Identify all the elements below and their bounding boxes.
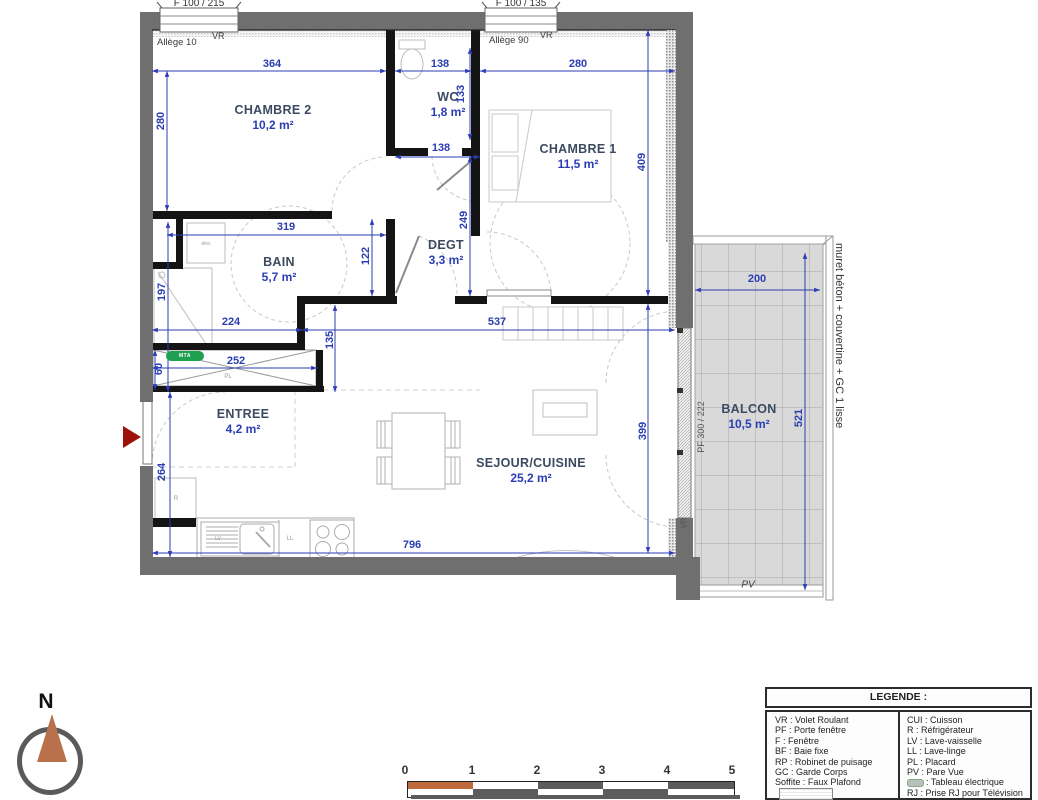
toilet-tank [399, 40, 425, 49]
dim-364: 364 [263, 58, 281, 70]
legend-body: VR : Volet Roulant PF : Porte fenêtre F … [765, 710, 1032, 800]
dim-138b: 138 [432, 142, 450, 154]
dim-133: 133 [455, 85, 467, 103]
dining-table [392, 413, 445, 489]
room-wc-area: 1,8 m² [431, 105, 466, 120]
legend-item: LV : Lave-vaisselle [907, 736, 1027, 746]
scale-tick-3: 3 [599, 763, 606, 777]
mta-badge: MTA [166, 351, 204, 361]
legend-item: BF : Baie fixe [775, 746, 897, 756]
legend-box: LEGENDE : VR : Volet Roulant PF : Porte … [765, 687, 1032, 798]
elec-label: élec [201, 241, 210, 247]
scale-tick-2: 2 [534, 763, 541, 777]
scale-tick-4: 4 [664, 763, 671, 777]
dim-409: 409 [636, 153, 648, 171]
scale-tick-0: 0 [402, 763, 409, 777]
dim-60: 60 [153, 363, 165, 375]
dim-197: 197 [156, 283, 168, 301]
dim-399: 399 [637, 422, 649, 440]
vr-label-1: VR [212, 31, 225, 41]
chambre1-door-leaf [487, 290, 551, 296]
compass-north-label: N [38, 690, 53, 714]
legend-title: LEGENDE : [765, 687, 1032, 708]
dim-280h: 280 [569, 58, 587, 70]
room-entree: ENTREE 4,2 m² [217, 407, 270, 437]
room-bain-name: BAIN [262, 255, 297, 270]
window1-label: F 100 / 215 [174, 0, 225, 9]
dim-122: 122 [360, 247, 372, 265]
allege90-label: Allège 90 [489, 35, 529, 46]
dim-200: 200 [748, 273, 766, 285]
legend-item: : Tableau électrique [907, 777, 1027, 787]
legend-item: GC : Garde Corps [775, 767, 897, 777]
room-chambre1-area: 11,5 m² [539, 157, 616, 172]
dim-537: 537 [488, 316, 506, 328]
dim-252: 252 [227, 355, 245, 367]
room-entree-area: 4,2 m² [217, 422, 270, 437]
entrance-arrow-icon [123, 426, 141, 448]
pv-label: PV [741, 580, 754, 591]
legend-item: PF : Porte fenêtre [775, 725, 897, 735]
room-degt: DEGT 3,3 m² [428, 238, 464, 268]
dim-796: 796 [403, 539, 421, 551]
room-degt-area: 3,3 m² [428, 253, 464, 268]
legend-item: PV : Pare Vue [907, 767, 1027, 777]
scale-tick-5: 5 [729, 763, 736, 777]
dim-138a: 138 [431, 58, 449, 70]
legend-left-column: VR : Volet Roulant PF : Porte fenêtre F … [775, 715, 897, 800]
legend-item: RP : Robinet de puisage [775, 757, 897, 767]
dim-224: 224 [222, 316, 240, 328]
legend-item: Soffite : Faux Plafond [775, 777, 897, 799]
dim-249: 249 [458, 211, 470, 229]
legend-item-tableau: : Tableau électrique [926, 777, 1004, 787]
shower-tray [154, 268, 212, 348]
legend-right-column: CUI : Cuisson R : Réfrigérateur LV : Lav… [907, 715, 1027, 800]
fridge-label: R [174, 496, 178, 502]
dim-319: 319 [277, 221, 295, 233]
lv-label: LV [215, 536, 221, 542]
tableau-electrique-icon [907, 779, 924, 787]
placard-label: PL [224, 374, 231, 380]
legend-item: PL : Placard [907, 757, 1027, 767]
scale-tick-1: 1 [469, 763, 476, 777]
entrance-door-leaf [143, 400, 152, 464]
room-chambre2-area: 10,2 m² [234, 118, 311, 133]
dim-521: 521 [793, 409, 805, 427]
room-bain-area: 5,7 m² [262, 270, 297, 285]
legend-item: LL : Lave-linge [907, 746, 1027, 756]
dim-135: 135 [324, 331, 336, 349]
legend-item: RJ : Prise RJ pour Télévision Séjour [907, 788, 1027, 800]
room-balcon-name: BALCON [721, 402, 776, 417]
room-chambre1-name: CHAMBRE 1 [539, 142, 616, 157]
legend-item: R : Réfrigérateur [907, 725, 1027, 735]
vr-label-2: VR [540, 30, 553, 40]
legend-item: VR : Volet Roulant [775, 715, 897, 725]
toilet-bowl [401, 49, 423, 79]
ll-label: LL [287, 536, 294, 542]
room-entree-name: ENTREE [217, 407, 270, 422]
floor-plan-canvas: F 100 / 215 F 100 / 135 VR VR Allège 10 … [0, 0, 1038, 800]
pf-sliding-door [677, 328, 691, 518]
pf-door-label: PF 300 / 222 [696, 401, 706, 453]
legend-item: F : Fenêtre [775, 736, 897, 746]
legend-divider [898, 712, 900, 798]
room-chambre2: CHAMBRE 2 10,2 m² [234, 103, 311, 133]
dim-264: 264 [156, 463, 168, 481]
legend-item: CUI : Cuisson [907, 715, 1027, 725]
room-balcon-area: 10,5 m² [721, 417, 776, 432]
scale-bar-shadow [411, 795, 740, 799]
compass-needle-icon [37, 714, 67, 762]
room-sejour-name: SEJOUR/CUISINE [476, 456, 586, 471]
room-degt-name: DEGT [428, 238, 464, 253]
window2-label: F 100 / 135 [496, 0, 547, 9]
room-chambre1: CHAMBRE 1 11,5 m² [539, 142, 616, 172]
soffite-swatch [779, 788, 833, 800]
sink-bowl [240, 524, 274, 554]
vr-pf-label: VR [680, 517, 689, 528]
legend-item-soffite: Soffite : Faux Plafond [775, 777, 861, 787]
room-sejour: SEJOUR/CUISINE 25,2 m² [476, 456, 586, 486]
muret-note: muret béton + couvertine + GC 1 lisse [833, 243, 845, 428]
room-chambre2-name: CHAMBRE 2 [234, 103, 311, 118]
room-balcon: BALCON 10,5 m² [721, 402, 776, 432]
allege10-label: Allège 10 [157, 37, 197, 48]
room-sejour-area: 25,2 m² [476, 471, 586, 486]
dim-280v: 280 [155, 112, 167, 130]
room-bain: BAIN 5,7 m² [262, 255, 297, 285]
